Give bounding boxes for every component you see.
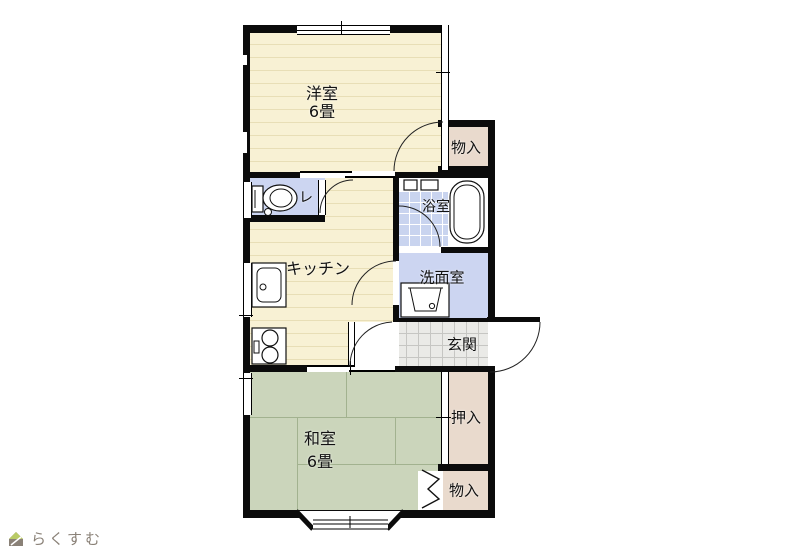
entrance-door-leaf bbox=[487, 317, 540, 322]
rakusumu-logo: らくすむ bbox=[7, 528, 103, 549]
wall-bath-left bbox=[393, 172, 399, 253]
vent-west-2 bbox=[243, 132, 247, 153]
washroom-doorway bbox=[393, 261, 399, 305]
bath-doorway bbox=[399, 247, 441, 253]
logo-text: らくすむ bbox=[31, 528, 103, 549]
wall-toilet-bottom bbox=[246, 215, 325, 222]
wall-washroom-left-upper bbox=[393, 253, 399, 261]
label-entrance: 玄関 bbox=[447, 334, 477, 355]
tatami-seam bbox=[346, 372, 347, 417]
vent-west-1 bbox=[243, 55, 247, 65]
sliding-door-tick bbox=[350, 361, 351, 375]
wall-western-south-left bbox=[243, 172, 300, 178]
label-japanese-room-size: 6畳 bbox=[307, 448, 333, 472]
label-closet: 押入 bbox=[451, 407, 481, 428]
tatami-seam bbox=[395, 417, 396, 464]
house-icon bbox=[7, 530, 25, 548]
sliding-door-rail bbox=[300, 171, 352, 173]
window-kitchen bbox=[243, 263, 252, 317]
label-western-room-size: 6畳 bbox=[309, 98, 335, 122]
storage-lower-opening bbox=[418, 471, 443, 510]
label-bathroom: 浴室 bbox=[422, 196, 450, 216]
floorplan-canvas: 洋室 6畳 物入 浴室 レ キッチン 洗面室 玄関 和室 6畳 押入 物入 らく… bbox=[0, 0, 785, 556]
window-japanese bbox=[243, 373, 252, 415]
label-toilet: レ bbox=[299, 187, 313, 207]
fusuma-tick bbox=[436, 417, 451, 418]
wall-washroom-bottom bbox=[399, 318, 488, 322]
entrance-door-opening bbox=[488, 322, 495, 366]
window-tick bbox=[341, 21, 342, 35]
window-east-western-room bbox=[441, 25, 449, 122]
label-washroom: 洗面室 bbox=[419, 267, 464, 288]
entrance-hall-doorway bbox=[393, 322, 399, 366]
label-storage-lower: 物入 bbox=[449, 480, 479, 501]
label-storage-upper: 物入 bbox=[451, 137, 481, 158]
wall-bottom bbox=[243, 510, 495, 518]
sliding-door-rail bbox=[307, 365, 354, 367]
closet-fusuma bbox=[441, 372, 449, 464]
tatami-seam bbox=[250, 417, 441, 418]
tatami-seam bbox=[297, 417, 298, 510]
window-tick bbox=[239, 378, 253, 379]
window-north bbox=[297, 25, 390, 35]
entrance-door-arc bbox=[490, 322, 540, 372]
label-kitchen: キッチン bbox=[286, 255, 350, 279]
toilet-door-leaf bbox=[318, 180, 326, 215]
room-toilet bbox=[250, 178, 325, 215]
label-japanese-room: 和室 bbox=[304, 425, 336, 449]
wall-western-south-right bbox=[393, 172, 490, 178]
storage-upper-door-leaf bbox=[441, 122, 449, 170]
window-tick bbox=[436, 72, 450, 73]
room-western bbox=[250, 32, 441, 172]
sliding-door-rail bbox=[345, 176, 395, 178]
wall-closet-bottom bbox=[438, 464, 495, 471]
window-toilet bbox=[243, 182, 252, 218]
wall-kitchen-japanese bbox=[243, 365, 307, 372]
sliding-door-rail bbox=[349, 370, 395, 372]
entrance-approach bbox=[350, 322, 395, 365]
window-tick bbox=[239, 315, 253, 316]
